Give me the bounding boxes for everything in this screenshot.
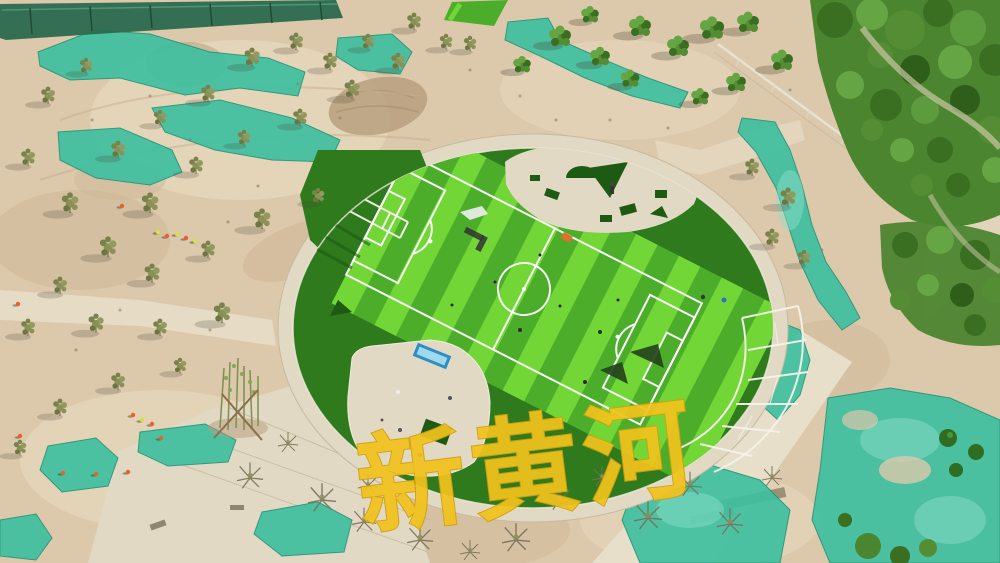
worker-on-notch xyxy=(610,182,614,194)
person-blue xyxy=(722,298,727,303)
photo-canvas: 新黄河 xyxy=(0,0,1000,563)
person-dark xyxy=(701,295,705,299)
aerial-photo: 新黄河 xyxy=(0,0,1000,563)
